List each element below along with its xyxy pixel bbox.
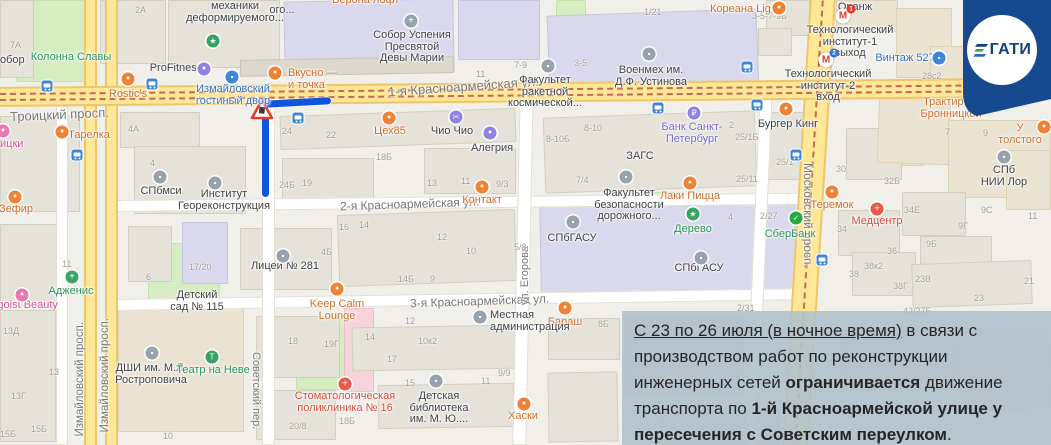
building-number: 19 <box>302 178 312 188</box>
bus-stop-icon[interactable] <box>72 150 83 161</box>
poi-label[interactable]: обор <box>0 55 25 67</box>
poi-label[interactable]: Измайловский гостиный двор <box>196 84 270 107</box>
poi-label[interactable]: Детская библиотека им. М. Ю.... <box>410 391 469 426</box>
notice-line: С 23 по 26 июля (в ночное время) в связи… <box>634 318 1039 344</box>
poi-icon-glyph: ▪ <box>547 62 550 70</box>
notice-text-segment: 1-й Красноармейской улице у <box>751 399 1002 418</box>
poi-label[interactable]: ЗАГС <box>626 151 653 163</box>
building-number: 2 <box>729 120 734 130</box>
building-number: 9Б <box>926 239 937 249</box>
poi-label[interactable]: СПб НИИ Лор <box>981 165 1028 188</box>
building-number: 9 <box>430 274 435 284</box>
building-number: 2А <box>135 5 146 15</box>
poi-icon-glyph: ▪ <box>938 54 941 62</box>
poi-label[interactable]: СПбмси <box>140 186 181 198</box>
building-number: 9С <box>981 205 993 215</box>
building-number: 36 <box>887 246 897 256</box>
building-number: 14 <box>365 332 375 342</box>
poi-label[interactable]: Цех85 <box>374 126 406 138</box>
building-number: 13 <box>427 178 437 188</box>
poi-icon-glyph: • <box>20 290 24 301</box>
building-number: 25/1Б <box>735 132 758 142</box>
building-number: 8-10Б <box>546 134 570 144</box>
poi-icon[interactable]: • <box>1038 121 1051 134</box>
bus-stop-icon[interactable] <box>742 62 753 73</box>
poi-icon[interactable]: ▪ <box>226 71 239 84</box>
building-number: 34 <box>837 224 847 234</box>
poi-icon[interactable]: + <box>871 203 884 216</box>
notice-line: пересечения с Советским переулком. <box>634 422 1039 445</box>
poi-icon-glyph: ▪ <box>700 254 703 262</box>
poi-icon[interactable]: ▪ <box>474 311 487 324</box>
poi-icon[interactable]: ✂ <box>450 111 463 124</box>
map-viewport[interactable]: Троицкий просп.1-я Красноармейская ул.2-… <box>0 0 1051 445</box>
building-number: 15 <box>405 378 415 388</box>
poi-icon-glyph: • <box>563 303 567 314</box>
poi-icon-glyph: ▪ <box>435 377 438 385</box>
metro-line-badge: 1 <box>847 5 856 14</box>
poi-label[interactable]: Keep Calm Lounge <box>310 299 364 322</box>
notice-line: транспорта по 1-й Красноармейской улице … <box>634 396 1039 422</box>
notice-text-segment: инженерных сетей <box>634 373 786 392</box>
bus-stop-icon[interactable] <box>293 113 304 124</box>
poi-icon-glyph: • <box>688 178 692 189</box>
poi-label[interactable]: У толстого <box>998 123 1042 146</box>
poi-icon-glyph: • <box>335 284 339 295</box>
poi-icon[interactable]: + <box>66 271 79 284</box>
building <box>911 260 1032 308</box>
poi-icon[interactable]: • <box>773 2 786 15</box>
building-number: 18 <box>288 336 298 346</box>
building-number: 34Е <box>904 205 920 215</box>
poi-label[interactable]: Винтаж 527 <box>875 53 934 65</box>
poi-icon[interactable]: ▪ <box>933 52 946 65</box>
poi-icon[interactable]: ▪ <box>643 48 656 61</box>
poi-icon-glyph: • <box>126 74 130 85</box>
poi-icon[interactable]: ★ <box>687 208 700 221</box>
poi-icon-glyph: ★ <box>689 210 696 218</box>
bus-stop-icon[interactable] <box>42 81 53 92</box>
poi-label[interactable]: Собор Успения Пресвятой Девы Марии <box>373 30 451 65</box>
building-number: 11 <box>481 376 490 386</box>
building-number: 4 <box>728 212 733 222</box>
poi-icon-glyph: • <box>1 126 5 137</box>
poi-icon-glyph: Т <box>210 353 215 361</box>
building-number: 2/27 <box>760 211 778 221</box>
poi-label[interactable]: Алегрия <box>471 143 513 155</box>
poi-label[interactable]: Адженис <box>49 286 94 298</box>
building-number: 18Б <box>376 152 392 162</box>
building <box>758 28 792 56</box>
building-number: 20/8 <box>289 421 307 431</box>
road-closure-line-vertical <box>262 113 269 197</box>
poi-icon-glyph: ▪ <box>1003 153 1006 161</box>
poi-label[interactable]: ого... <box>269 5 294 17</box>
building-number: 7А <box>10 40 21 50</box>
poi-icon-glyph: • <box>202 64 206 75</box>
poi-icon[interactable]: • <box>383 112 396 125</box>
poi-label[interactable]: СберБанк <box>765 229 816 241</box>
building-number: 17 <box>387 354 397 364</box>
building-number: 4Б <box>321 247 332 257</box>
poi-icon[interactable]: ▪ <box>620 171 633 184</box>
building-number: 32Б <box>884 176 900 186</box>
poi-label[interactable]: Зефир <box>0 204 33 216</box>
building-number: 9/9 <box>498 368 511 378</box>
poi-label[interactable]: Хаски <box>508 411 538 423</box>
poi-icon[interactable]: • <box>484 127 497 140</box>
building-number: 28с2 <box>922 71 942 81</box>
poi-icon-glyph: ✂ <box>453 113 460 121</box>
poi-label[interactable]: Местная администрация <box>490 310 570 333</box>
poi-label[interactable]: СПбГАСУ <box>547 233 596 245</box>
poi-icon-glyph: • <box>60 127 64 138</box>
poi-icon-glyph: ₽ <box>691 109 696 117</box>
poi-label[interactable]: Лицей № 281 <box>251 261 319 273</box>
notice-text-segment: в связи с <box>902 321 978 340</box>
gati-logo-circle: ГАТИ <box>967 15 1037 85</box>
poi-icon[interactable]: ▪ <box>209 177 222 190</box>
poi-icon-glyph: • <box>777 3 781 14</box>
poi-label[interactable]: Rostic's <box>109 89 147 101</box>
poi-icon[interactable]: • <box>780 103 793 116</box>
closure-notice: С 23 по 26 июля (в ночное время) в связи… <box>622 311 1051 445</box>
street-label: Измайловский просп. <box>74 322 86 437</box>
poi-icon[interactable]: • <box>9 191 22 204</box>
poi-icon[interactable]: • <box>198 63 211 76</box>
building-number: 10 <box>466 246 476 256</box>
poi-label[interactable]: Кореана Light <box>710 4 780 16</box>
poi-icon-glyph: • <box>13 192 17 203</box>
building-number: 23 <box>974 293 984 303</box>
poi-label[interactable]: Egoist Beauty <box>0 300 58 312</box>
poi-icon[interactable]: • <box>331 283 344 296</box>
poi-icon-glyph: + <box>408 16 414 26</box>
poi-label[interactable]: Чио Чио <box>431 126 473 138</box>
poi-icon-glyph: ▪ <box>159 173 162 181</box>
building-number: 7 <box>945 127 950 137</box>
building-number: 17/20 <box>189 262 212 272</box>
poi-icon[interactable]: ▪ <box>998 151 1011 164</box>
poi-icon-glyph: ★ <box>209 37 216 45</box>
building-number: 38к2 <box>864 261 883 271</box>
poi-label[interactable]: ицки <box>0 139 23 151</box>
poi-icon[interactable]: ▪ <box>567 216 580 229</box>
building-number: 10 <box>163 431 173 441</box>
notice-line: инженерных сетей ограничивается движение <box>634 370 1039 396</box>
building-number: 5/8 <box>514 242 527 252</box>
building-number: 4А <box>128 124 139 134</box>
bus-stop-icon[interactable] <box>653 103 664 114</box>
building-number: 6 <box>146 272 151 282</box>
street-label: Московский просп. <box>801 163 815 268</box>
poi-label[interactable]: Технологический институт-2 вход <box>785 69 872 104</box>
poi-label[interactable]: Бургер Кинг <box>758 119 818 131</box>
poi-label[interactable]: Тарелка <box>68 130 110 142</box>
building-number: 12 <box>405 316 415 326</box>
building-number: 9Г <box>958 221 968 231</box>
poi-label[interactable]: Факультет ракетной космической... <box>508 75 582 110</box>
building-number: 38 <box>849 269 859 279</box>
building-number: 11 <box>461 176 470 186</box>
notice-text-segment: пересечения с Советским переулком <box>634 425 947 444</box>
notice-text-segment: . <box>947 425 952 444</box>
poi-icon-glyph: • <box>273 68 277 79</box>
poi-icon[interactable]: • <box>56 126 69 139</box>
poi-icon-glyph: ▪ <box>151 349 154 357</box>
building-number: 3-5 <box>574 58 587 68</box>
bus-stop-icon[interactable] <box>147 79 158 90</box>
poi-label[interactable]: СПбГАСУ <box>674 263 723 275</box>
building-number: 13Г <box>11 391 26 401</box>
metro-station-icon[interactable]: М1 <box>836 9 851 24</box>
poi-icon[interactable]: Т <box>206 351 219 364</box>
poi-icon[interactable]: + <box>405 15 418 28</box>
building-number: 14 <box>359 220 369 230</box>
building-number: 8Б <box>598 319 609 329</box>
poi-icon[interactable]: ▪ <box>430 375 443 388</box>
building <box>458 0 540 60</box>
poi-icon[interactable]: • <box>16 289 29 302</box>
poi-icon-glyph: • <box>830 187 834 198</box>
poi-icon-glyph: ▪ <box>648 50 651 58</box>
poi-icon[interactable]: • <box>518 398 531 411</box>
building-number: 11 <box>476 69 485 79</box>
poi-icon-glyph: + <box>342 379 348 389</box>
poi-icon[interactable]: ▪ <box>154 171 167 184</box>
building-number: 13Д <box>3 326 19 336</box>
building <box>282 158 374 202</box>
poi-icon-glyph: + <box>874 204 880 214</box>
building-number: 12 <box>437 232 447 242</box>
poi-icon[interactable]: • <box>269 67 282 80</box>
poi-icon-glyph: • <box>1042 122 1046 133</box>
building-number: 9/3 <box>496 179 509 189</box>
bus-stop-icon[interactable] <box>817 255 828 266</box>
building-number: 23В <box>915 274 931 284</box>
bus-stop-icon[interactable] <box>752 100 763 111</box>
notice-text-segment: движение <box>920 373 1002 392</box>
poi-label[interactable]: Вкусно — и точка <box>288 68 337 91</box>
street-label: Измайловский просп. <box>99 318 111 433</box>
building <box>547 371 618 442</box>
building-number: 22 <box>326 130 336 140</box>
poi-icon[interactable]: • <box>826 186 839 199</box>
poi-icon[interactable]: ▪ <box>277 250 290 263</box>
building-number: 15Б <box>31 424 47 434</box>
building-number: 11 <box>1028 211 1037 221</box>
notice-text-segment: транспорта по <box>634 399 751 418</box>
poi-icon[interactable]: + <box>339 378 352 391</box>
building-number: 21 <box>1024 276 1034 286</box>
building-number: 7-9 <box>514 60 527 70</box>
notice-text-segment: С 23 по 26 июля (в ночное время) <box>634 321 902 340</box>
building-number: 7/4 <box>576 175 589 185</box>
street-label: Советский пер. <box>250 352 262 429</box>
poi-icon-glyph: ▪ <box>214 179 217 187</box>
building-number: 9 <box>983 128 988 138</box>
poi-icon-glyph: ✓ <box>793 214 800 222</box>
poi-label[interactable]: Верона лофт <box>332 0 399 7</box>
poi-icon[interactable]: • <box>122 73 135 86</box>
poi-icon-glyph: • <box>488 128 492 139</box>
poi-label[interactable]: Колонна Славы <box>31 52 112 64</box>
poi-icon[interactable]: ✓ <box>790 212 803 225</box>
poi-label[interactable]: Медцентр <box>851 216 902 228</box>
poi-icon[interactable]: ▪ <box>146 347 159 360</box>
building-number: 8-10 <box>584 123 602 133</box>
building-number: 1/21 <box>644 7 662 17</box>
street-label: ул. Егорова <box>519 246 531 305</box>
poi-icon-glyph: + <box>69 272 75 282</box>
poi-icon-glyph: ▪ <box>479 313 482 321</box>
metro-station-icon[interactable]: М2 <box>819 53 834 68</box>
poi-icon-glyph: • <box>480 182 484 193</box>
poi-icon-glyph: • <box>387 113 391 124</box>
poi-icon-glyph: ▪ <box>625 173 628 181</box>
poi-icon[interactable]: ▪ <box>695 252 708 265</box>
building-number: 19Г <box>324 339 339 349</box>
building-number: 13 <box>49 367 59 377</box>
poi-label[interactable]: ProFitness <box>150 63 203 75</box>
building-number: 16 <box>339 222 349 232</box>
poi-label[interactable]: Банк Санкт- Петербург <box>661 122 722 145</box>
poi-icon[interactable]: • <box>559 302 572 315</box>
poi-label[interactable]: Дерево <box>674 224 712 236</box>
notice-line: производством работ по реконструкции <box>634 344 1039 370</box>
metro-line-badge: 2 <box>830 49 839 58</box>
poi-label[interactable]: Контакт <box>462 195 502 207</box>
poi-label[interactable]: Стоматологическая поликлиника № 16 <box>295 391 396 414</box>
poi-label[interactable]: Театр на Неве <box>176 365 249 377</box>
gati-logo-text: ГАТИ <box>990 41 1032 59</box>
building-number: 14Б <box>398 274 414 284</box>
building-number: 4 <box>150 158 155 168</box>
bus-stop-icon[interactable] <box>791 150 802 161</box>
poi-icon[interactable]: • <box>476 181 489 194</box>
notice-text-segment: ограничивается <box>786 373 921 392</box>
poi-icon-glyph: ▪ <box>282 252 285 260</box>
poi-label[interactable]: Факультет безопасности дорожного... <box>594 188 664 223</box>
building-number: 25/11 <box>736 174 758 184</box>
poi-icon-glyph: ▪ <box>231 73 234 81</box>
building-number: 24Б <box>279 180 295 190</box>
building-number: 10к2 <box>418 336 437 346</box>
notice-text-segment: производством работ по реконструкции <box>634 347 947 366</box>
building-number: 38Г <box>893 281 908 291</box>
poi-icon[interactable]: • <box>684 177 697 190</box>
building-number: 24 <box>282 126 292 136</box>
building-number: 11 <box>62 259 71 269</box>
poi-icon-glyph: • <box>784 104 788 115</box>
poi-label[interactable]: Институт Геореконструкция <box>178 189 270 212</box>
poi-label[interactable]: Лаки Пицца <box>660 191 720 203</box>
poi-icon-glyph: • <box>522 399 526 410</box>
gati-stripes-icon <box>973 44 988 57</box>
gati-logo-badge: ГАТИ <box>948 0 1051 122</box>
poi-icon-glyph: ▪ <box>572 218 575 226</box>
poi-icon[interactable]: ▪ <box>542 60 555 73</box>
building <box>182 222 228 284</box>
building-number: 18Б <box>339 416 355 426</box>
poi-label[interactable]: Теремок <box>811 200 854 212</box>
building-number: 15Б <box>0 429 16 439</box>
building-number: 30 <box>836 164 846 174</box>
poi-icon[interactable]: ★ <box>207 35 220 48</box>
poi-label[interactable]: Военмех им. Д.Ф. Устинова <box>615 65 687 88</box>
poi-label[interactable]: Детский сад № 115 <box>170 290 224 313</box>
poi-icon[interactable]: ₽ <box>688 107 701 120</box>
